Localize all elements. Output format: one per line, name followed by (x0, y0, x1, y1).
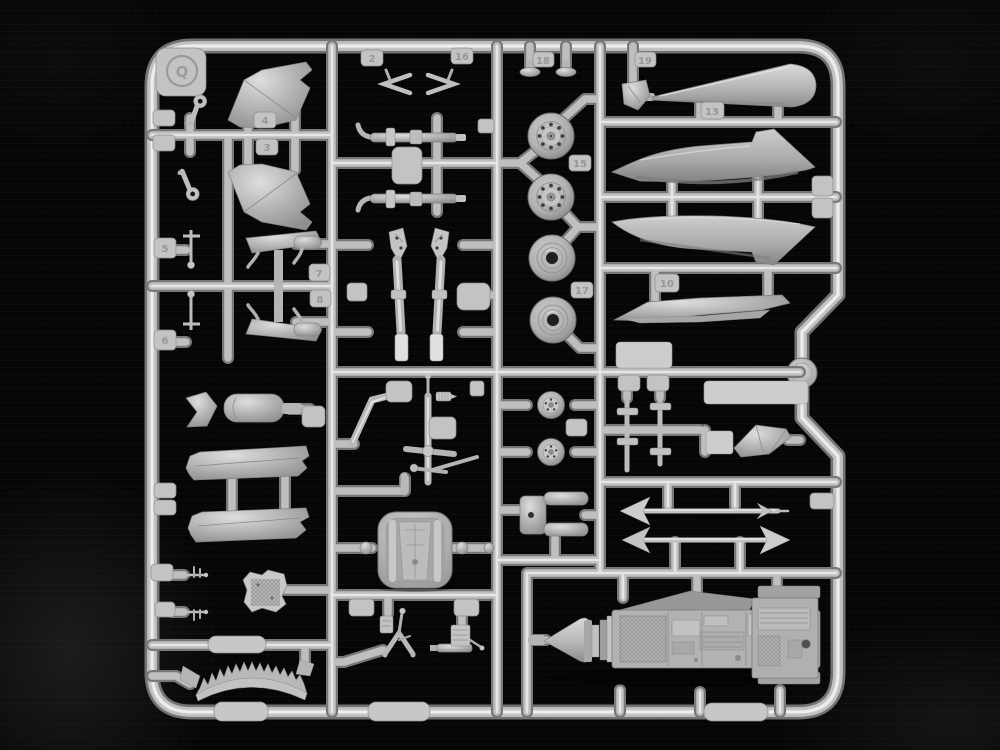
part-number-tab: 3 (256, 139, 278, 155)
svg-text:8: 8 (317, 295, 324, 306)
part-number-tab: 15 (569, 155, 591, 171)
svg-text:3: 3 (264, 143, 271, 154)
part-number-tab: 5 (154, 238, 176, 258)
part-number-tab: 17 (571, 282, 593, 298)
svg-text:18: 18 (536, 56, 550, 67)
badge-letter: Q (176, 63, 189, 81)
part-number-tab: 8 (310, 290, 331, 307)
svg-text:2: 2 (369, 54, 376, 65)
main-wheel-inner-1 (529, 235, 575, 281)
nose-wheel-1 (538, 392, 565, 419)
part-number-tab: 18 (533, 52, 554, 67)
svg-text:13: 13 (705, 107, 719, 118)
main-wheel-outer-1 (528, 113, 574, 159)
part-number-tab: 10 (655, 274, 679, 292)
svg-text:15: 15 (573, 159, 587, 170)
intake-strip-lower (188, 508, 309, 542)
svg-text:7: 7 (316, 269, 323, 280)
part-number-tab: 13 (701, 102, 724, 119)
main-wheel-outer-2 (528, 174, 574, 220)
blank-plate-long (704, 381, 808, 404)
part-number-tab: 7 (309, 264, 330, 281)
part-number-tab: 16 (451, 48, 473, 64)
part-number-tab: 2 (361, 50, 383, 66)
sprue-photo: Q (0, 0, 1000, 750)
svg-text:4: 4 (262, 116, 269, 127)
svg-text:16: 16 (455, 52, 469, 63)
part-number-tab: 4 (254, 112, 276, 128)
svg-text:17: 17 (575, 286, 589, 297)
svg-text:6: 6 (162, 336, 169, 347)
part-number-tab: 6 (154, 330, 176, 350)
main-wheel-inner-2 (530, 297, 576, 343)
instrument-panel-part (243, 570, 287, 612)
part-number-tab: 19 (635, 52, 656, 67)
svg-text:10: 10 (660, 279, 674, 290)
svg-text:5: 5 (162, 244, 169, 255)
blank-plate-small (616, 342, 672, 368)
nose-wheel-2 (538, 439, 565, 466)
svg-text:19: 19 (638, 56, 652, 67)
sprue-letter-badge: Q (156, 48, 206, 96)
